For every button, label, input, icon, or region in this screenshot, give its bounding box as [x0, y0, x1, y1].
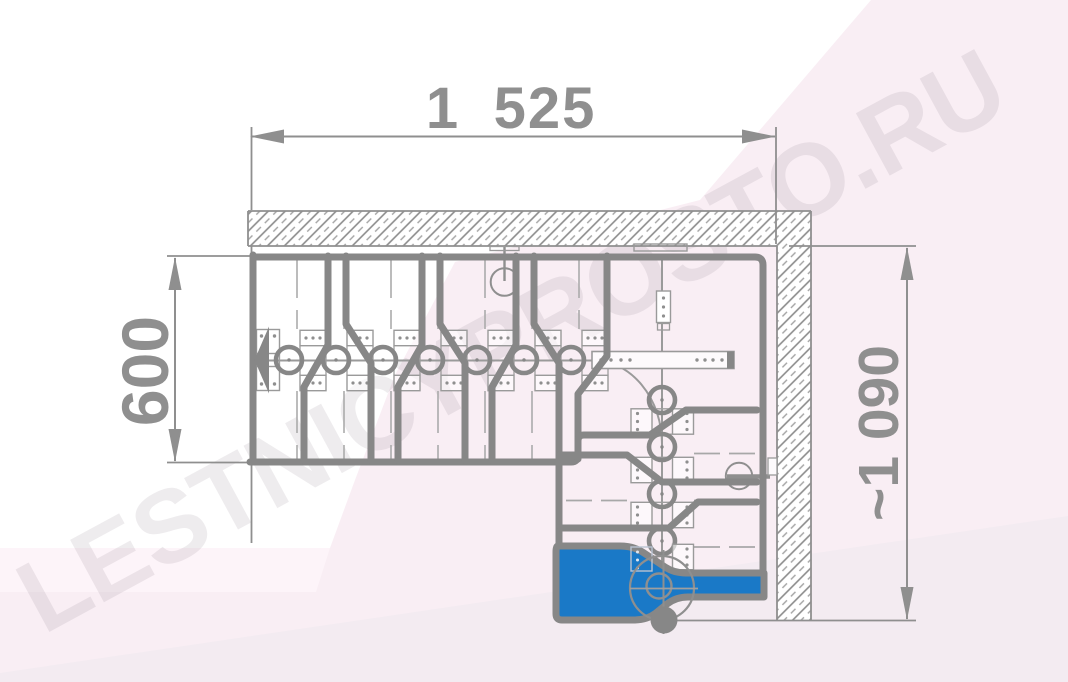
svg-text:525: 525: [494, 76, 597, 141]
svg-text:600: 600: [108, 316, 182, 426]
svg-text:~1 090: ~1 090: [847, 345, 911, 521]
svg-text:1: 1: [426, 76, 458, 141]
